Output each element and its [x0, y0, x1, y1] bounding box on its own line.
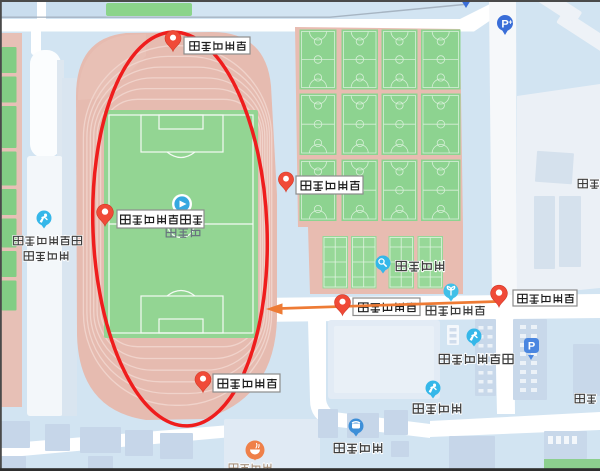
svg-text:P: P — [528, 341, 535, 353]
svg-text:+: + — [508, 20, 512, 27]
